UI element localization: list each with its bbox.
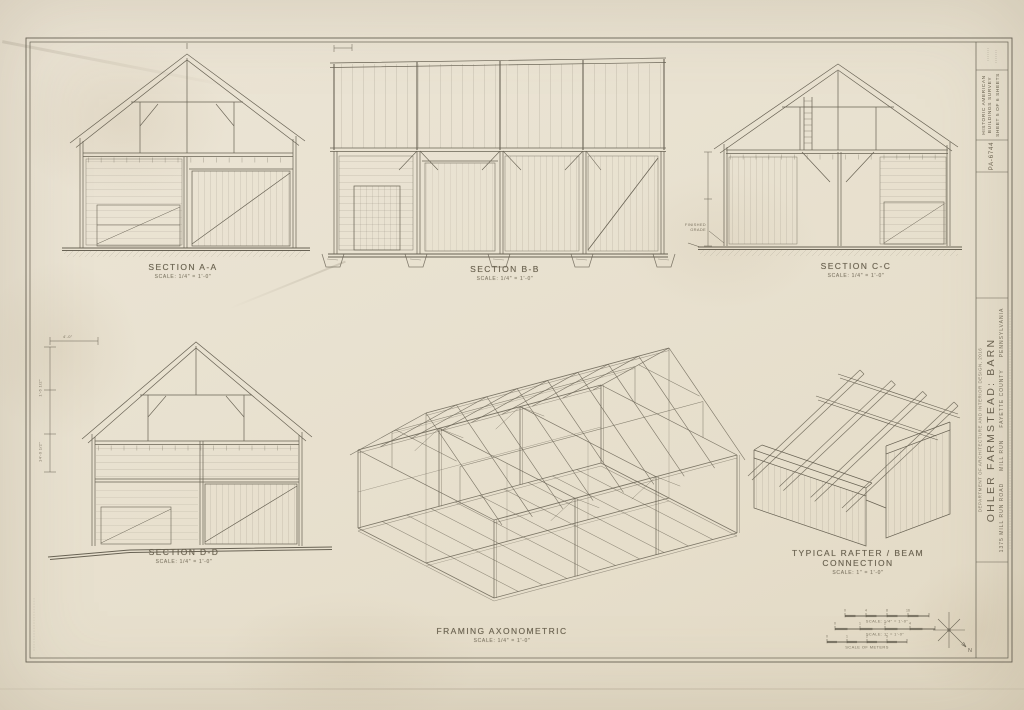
dimension-label: 14'-0 1/2" (38, 442, 43, 462)
scale-bar-tick-label: 0 (826, 635, 828, 639)
structure-state: PENNSYLVANIA (999, 308, 1005, 358)
section-aa-title: SECTION A-A (148, 262, 217, 272)
scale-bar-tick-label: 1 (859, 622, 861, 626)
axonometric-scale: SCALE: 1/4" = 1'-0" (474, 638, 531, 644)
section-dd-scale: SCALE: 1/4" = 1'-0" (156, 559, 213, 565)
scale-bar-tick-label: 0 (834, 622, 836, 626)
credit-line: DEPARTMENT OF ARCHITECTURE AND INTERIOR … (978, 348, 983, 513)
scale-bar-tick-label: 4 (865, 609, 867, 613)
scale-bar-label: SCALE OF METERS (845, 645, 889, 650)
habs-drawing-sheet: 04816SCALE: 1/4" = 1'-0"0124SCALE: 1" = … (0, 0, 1024, 710)
finished-grade-note: FINISHED GRADE (676, 222, 706, 232)
drawing-linework: 04816SCALE: 1/4" = 1'-0"0124SCALE: 1" = … (0, 0, 1024, 710)
structure-name: OHLER FARMSTEAD: BARN (985, 308, 997, 553)
framing-axonometric-drawing (350, 348, 745, 601)
section-dd-drawing (44, 337, 332, 560)
north-arrow: N (933, 612, 972, 654)
section-bb-title: SECTION B-B (470, 264, 540, 274)
section-dd-title: SECTION D-D (149, 547, 220, 557)
detail-title-line1: TYPICAL RAFTER / BEAM (792, 548, 924, 558)
scale-bar-tick-label: 16 (906, 609, 910, 613)
axonometric-title: FRAMING AXONOMETRIC (437, 626, 568, 636)
survey-title: HISTORIC AMERICAN BUILDINGS SURVEY SHEET… (982, 73, 1002, 137)
structure-county: FAYETTE COUNTY (999, 369, 1005, 427)
scale-bar-label: SCALE: 1/4" = 1'-0" (866, 619, 909, 624)
north-label: N (968, 648, 972, 654)
sheet-number: SHEET 5 OF 6 SHEETS (996, 73, 1002, 137)
structure-address: 1375 MILL RUN ROAD (999, 483, 1005, 553)
section-bb-scale: SCALE: 1/4" = 1'-0" (477, 276, 534, 282)
survey-number: PA-6744 (989, 142, 995, 171)
section-cc-scale: SCALE: 1/4" = 1'-0" (828, 273, 885, 279)
dimension-label: 1'-6 1/2" (38, 379, 43, 396)
scale-bar-tick-label: 4 (909, 622, 911, 626)
section-bb-drawing (322, 44, 675, 267)
structure-name-block: OHLER FARMSTEAD: BARN 1375 MILL RUN ROAD… (985, 308, 1005, 553)
section-aa-drawing (62, 43, 310, 257)
detail-title-line2: CONNECTION (822, 558, 893, 568)
section-cc-title: SECTION C-C (821, 261, 892, 271)
scale-bar-tick-label: 8 (886, 609, 888, 613)
section-cc-drawing (688, 64, 962, 256)
structure-town: MILL RUN (999, 440, 1005, 471)
scale-bar-tick-label: 0 (844, 609, 846, 613)
scale-bar-tick-label: 5 (886, 635, 888, 639)
scale-bar-tick-label: 2 (884, 622, 886, 626)
scale-bar-group: 04816SCALE: 1/4" = 1'-0"0124SCALE: 1" = … (826, 609, 935, 650)
rafter-beam-detail-drawing (748, 370, 960, 546)
scale-bar-tick-label: 1 (846, 635, 848, 639)
section-aa-scale: SCALE: 1/4" = 1'-0" (155, 274, 212, 280)
detail-scale: SCALE: 1" = 1'-0" (832, 570, 883, 576)
dimension-label: 4'-0" (63, 334, 72, 339)
scale-bar-tick-label: 2 (866, 635, 868, 639)
